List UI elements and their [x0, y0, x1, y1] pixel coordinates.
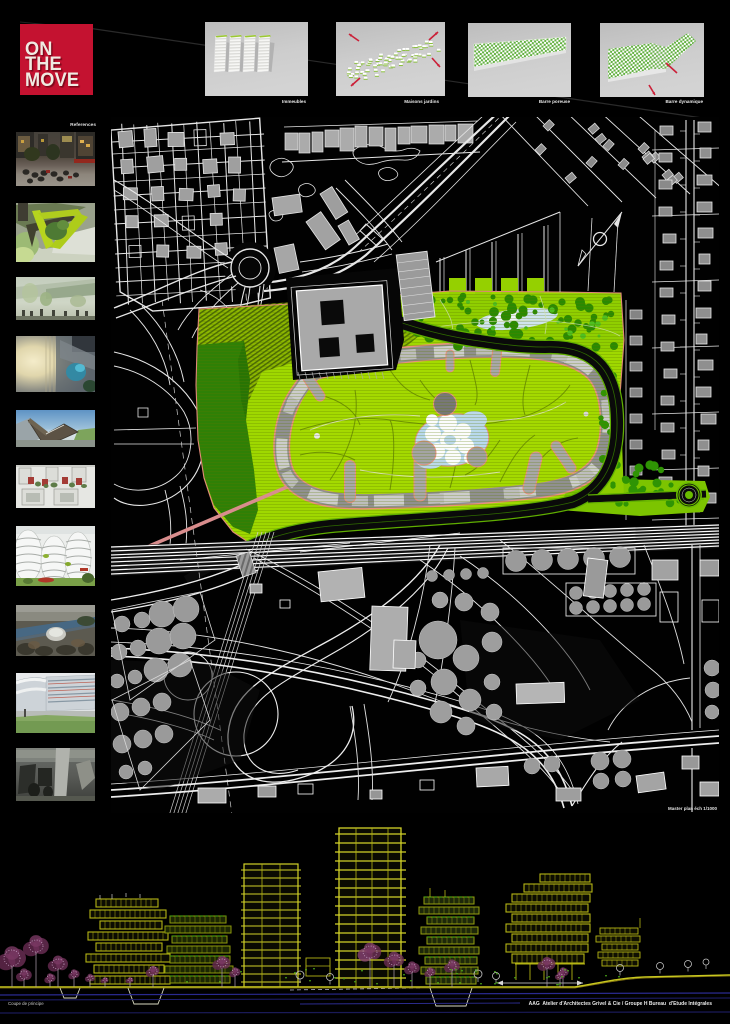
svg-text:Master plan éch 1/1000: Master plan éch 1/1000 — [668, 806, 718, 811]
